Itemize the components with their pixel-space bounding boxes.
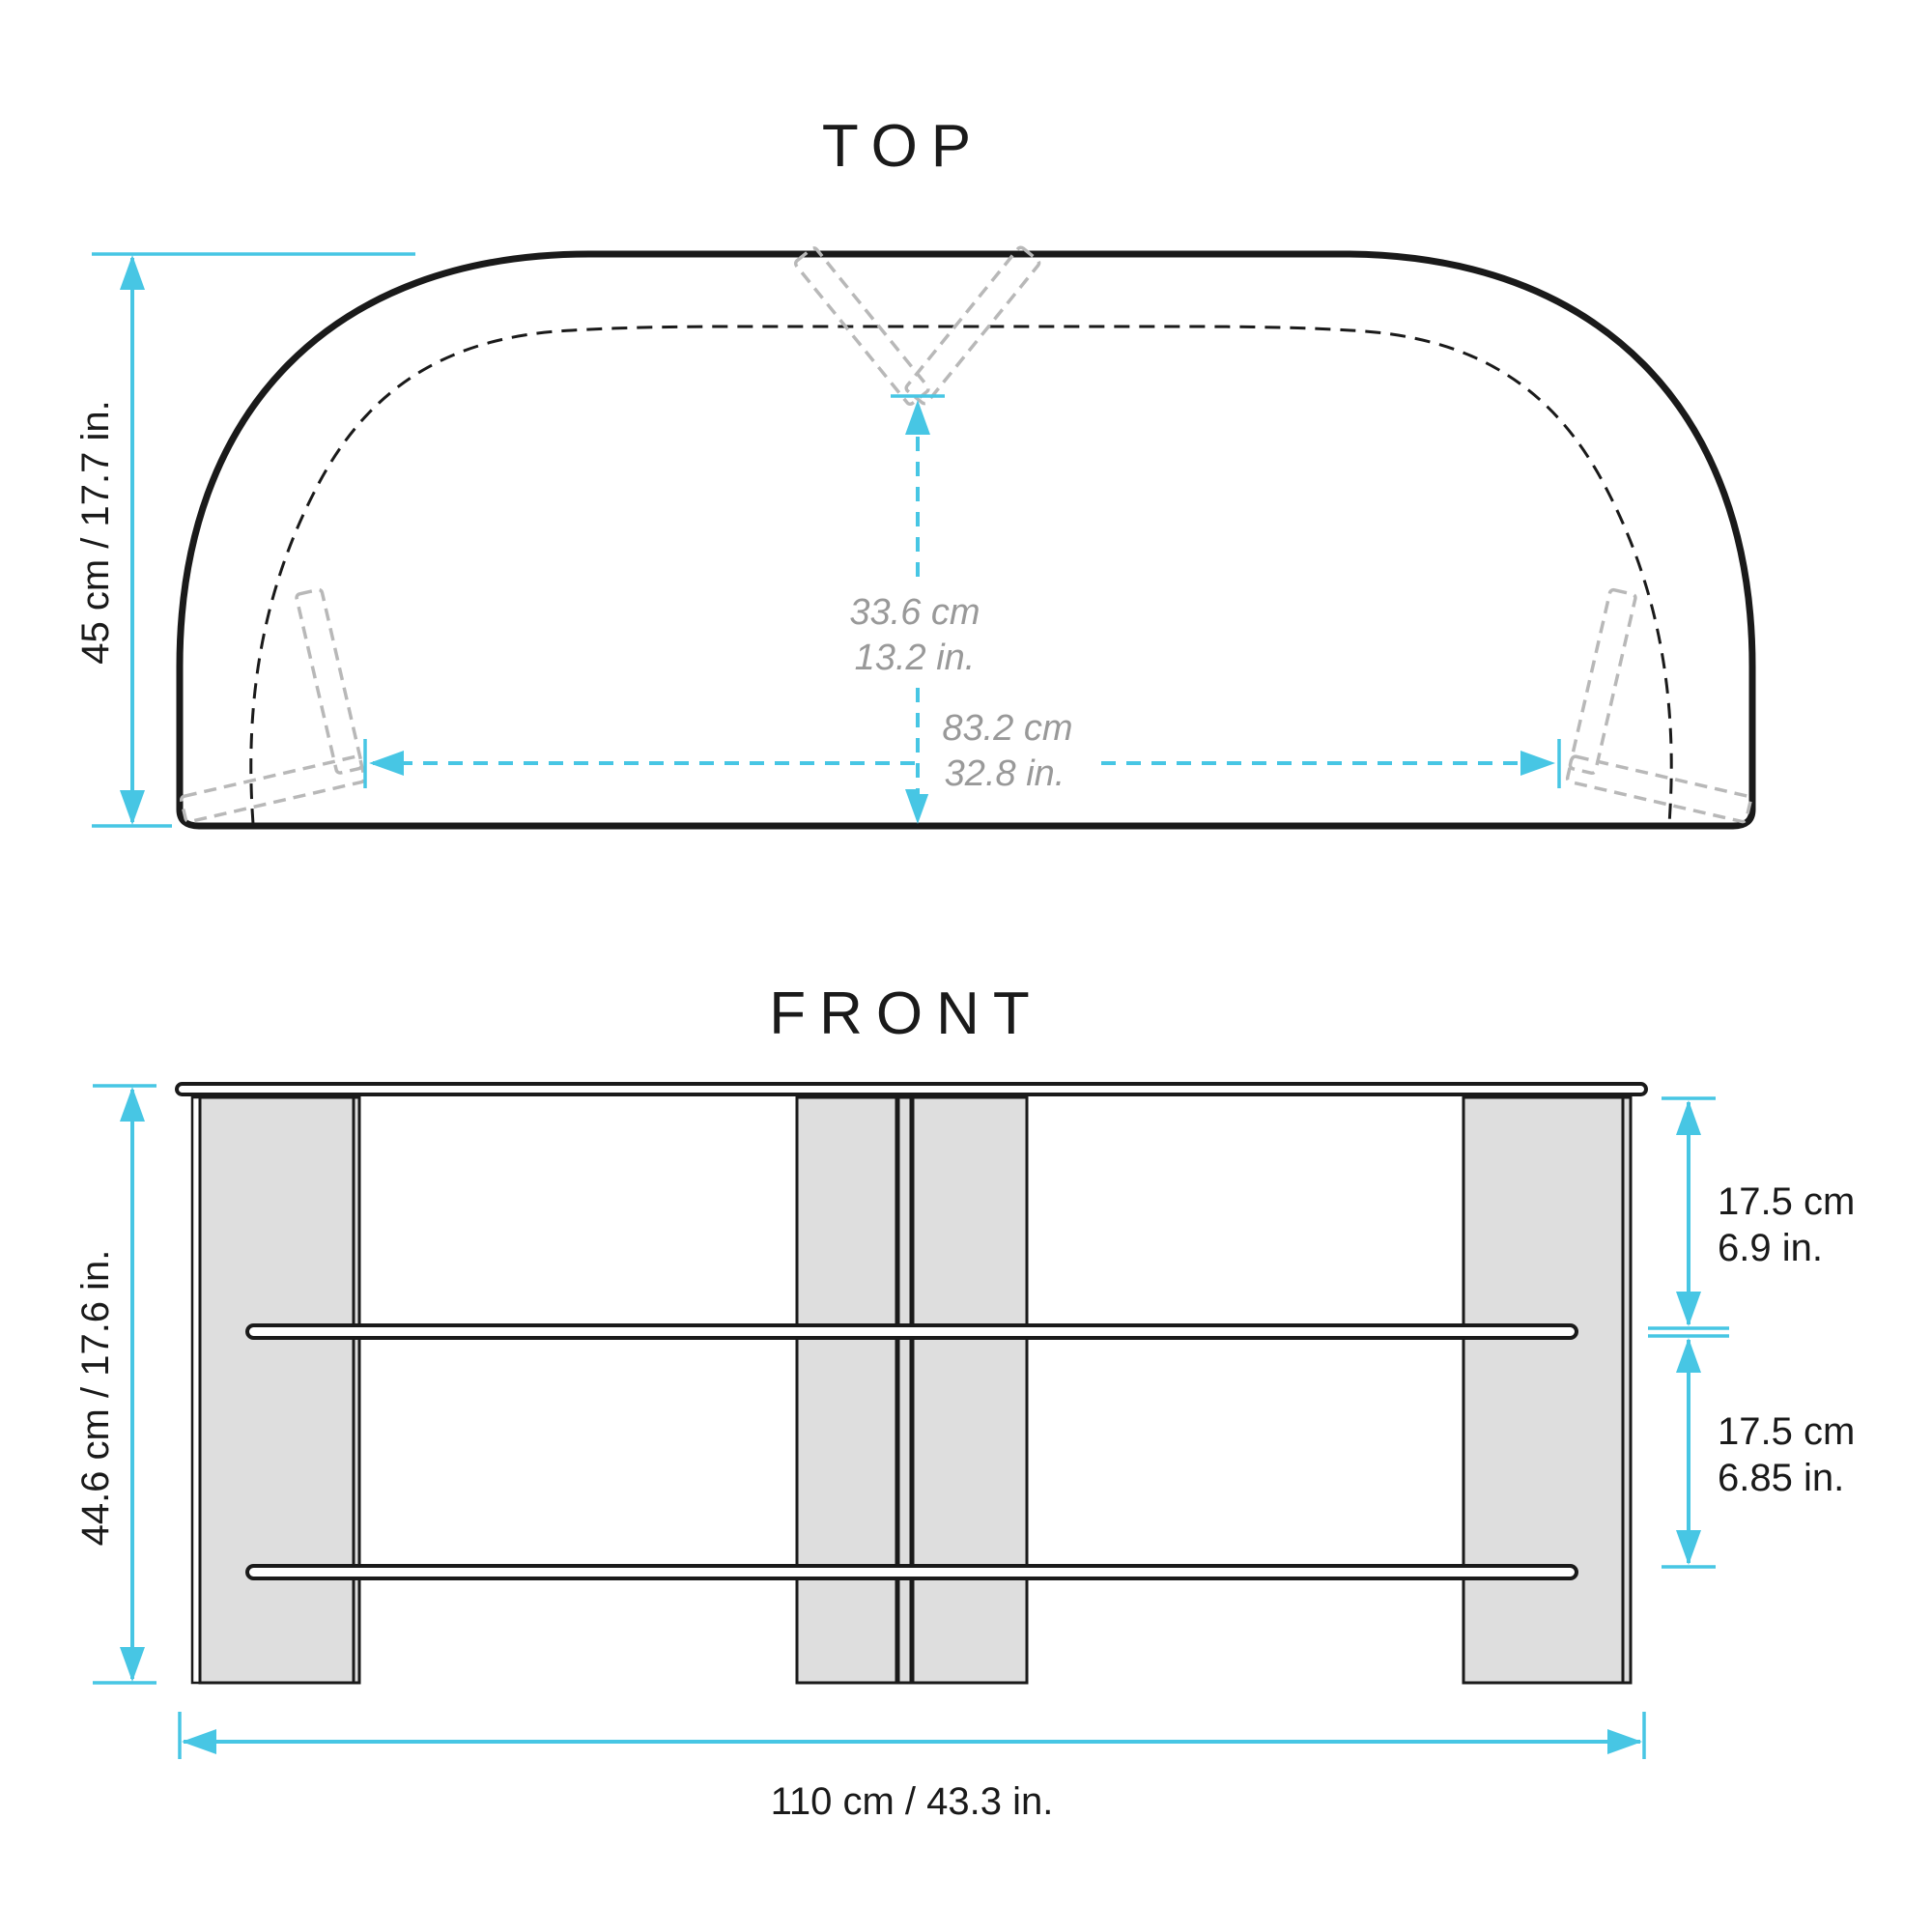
right-leg-back-edge (1623, 1097, 1631, 1683)
inner-width-arrow-right-icon (1520, 751, 1555, 776)
height-dim-arrow-up-icon (120, 1087, 145, 1122)
upper-gap-label-cm: 17.5 cm (1718, 1180, 1855, 1223)
depth-dim-arrow-up-icon (120, 255, 145, 290)
inner-depth-label-in: 13.2 in. (855, 638, 976, 678)
center-leg-right-panel (913, 1097, 1027, 1683)
front-width-dimension: 110 cm / 43.3 in. (180, 1712, 1644, 1823)
right-bracket-up-arm (1570, 589, 1636, 774)
lower-gap-arrow-down-icon (1676, 1530, 1701, 1565)
top-view-title: TOP (822, 113, 984, 180)
depth-dim-label: 45 cm / 17.7 in. (74, 400, 117, 664)
front-height-dimension: 44.6 cm / 17.6 in. (74, 1086, 156, 1683)
width-dim-arrow-right-icon (1607, 1729, 1642, 1754)
center-leg-left-panel (797, 1097, 896, 1683)
inner-width-label-in: 32.8 in. (945, 753, 1065, 794)
height-dim-label: 44.6 cm / 17.6 in. (74, 1250, 117, 1547)
width-dim-label: 110 cm / 43.3 in. (771, 1780, 1054, 1823)
right-leg-panel (1463, 1097, 1623, 1683)
lower-gap-label-in: 6.85 in. (1718, 1457, 1844, 1499)
left-leg-back-edge (354, 1097, 359, 1683)
lower-gap-label-cm: 17.5 cm (1718, 1410, 1855, 1453)
width-dim-arrow-left-icon (182, 1729, 216, 1754)
left-bracket-up-arm (296, 589, 362, 774)
bottom-shelf (247, 1566, 1577, 1578)
height-dim-arrow-down-icon (120, 1647, 145, 1682)
inner-depth-arrow-down-icon (905, 789, 930, 824)
top-shelf (177, 1084, 1646, 1094)
inner-width-label-cm: 83.2 cm (942, 708, 1072, 749)
front-view: FRONT 44.6 cm / 17.6 in. (74, 980, 1855, 1823)
front-view-title: FRONT (769, 980, 1043, 1047)
upper-gap-arrow-up-icon (1676, 1100, 1701, 1135)
inner-depth-label-cm: 33.6 cm (849, 592, 980, 633)
middle-shelf (247, 1325, 1577, 1338)
tv-stand-dimension-diagram: TOP 45 cm / 17.7 in. (0, 0, 1932, 1932)
inner-width-arrow-left-icon (369, 751, 404, 776)
top-view: TOP 45 cm / 17.7 in. (74, 113, 1752, 826)
left-leg-panel (200, 1097, 354, 1683)
left-bracket-side-arm (181, 755, 365, 822)
top-inner-width-dimension: 83.2 cm 32.8 in. (365, 703, 1559, 794)
front-legs (192, 1097, 1631, 1683)
lower-gap-arrow-up-icon (1676, 1338, 1701, 1373)
center-leg-middle-strip (898, 1097, 911, 1683)
diagram-page: TOP 45 cm / 17.7 in. (0, 0, 1932, 1932)
upper-gap-arrow-down-icon (1676, 1292, 1701, 1326)
depth-dim-arrow-down-icon (120, 790, 145, 825)
front-shelf-gap-dimensions: 17.5 cm 6.9 in. 17.5 cm 6.85 in. (1648, 1098, 1855, 1567)
right-bracket-side-arm (1567, 755, 1751, 822)
upper-gap-label-in: 6.9 in. (1718, 1227, 1823, 1269)
